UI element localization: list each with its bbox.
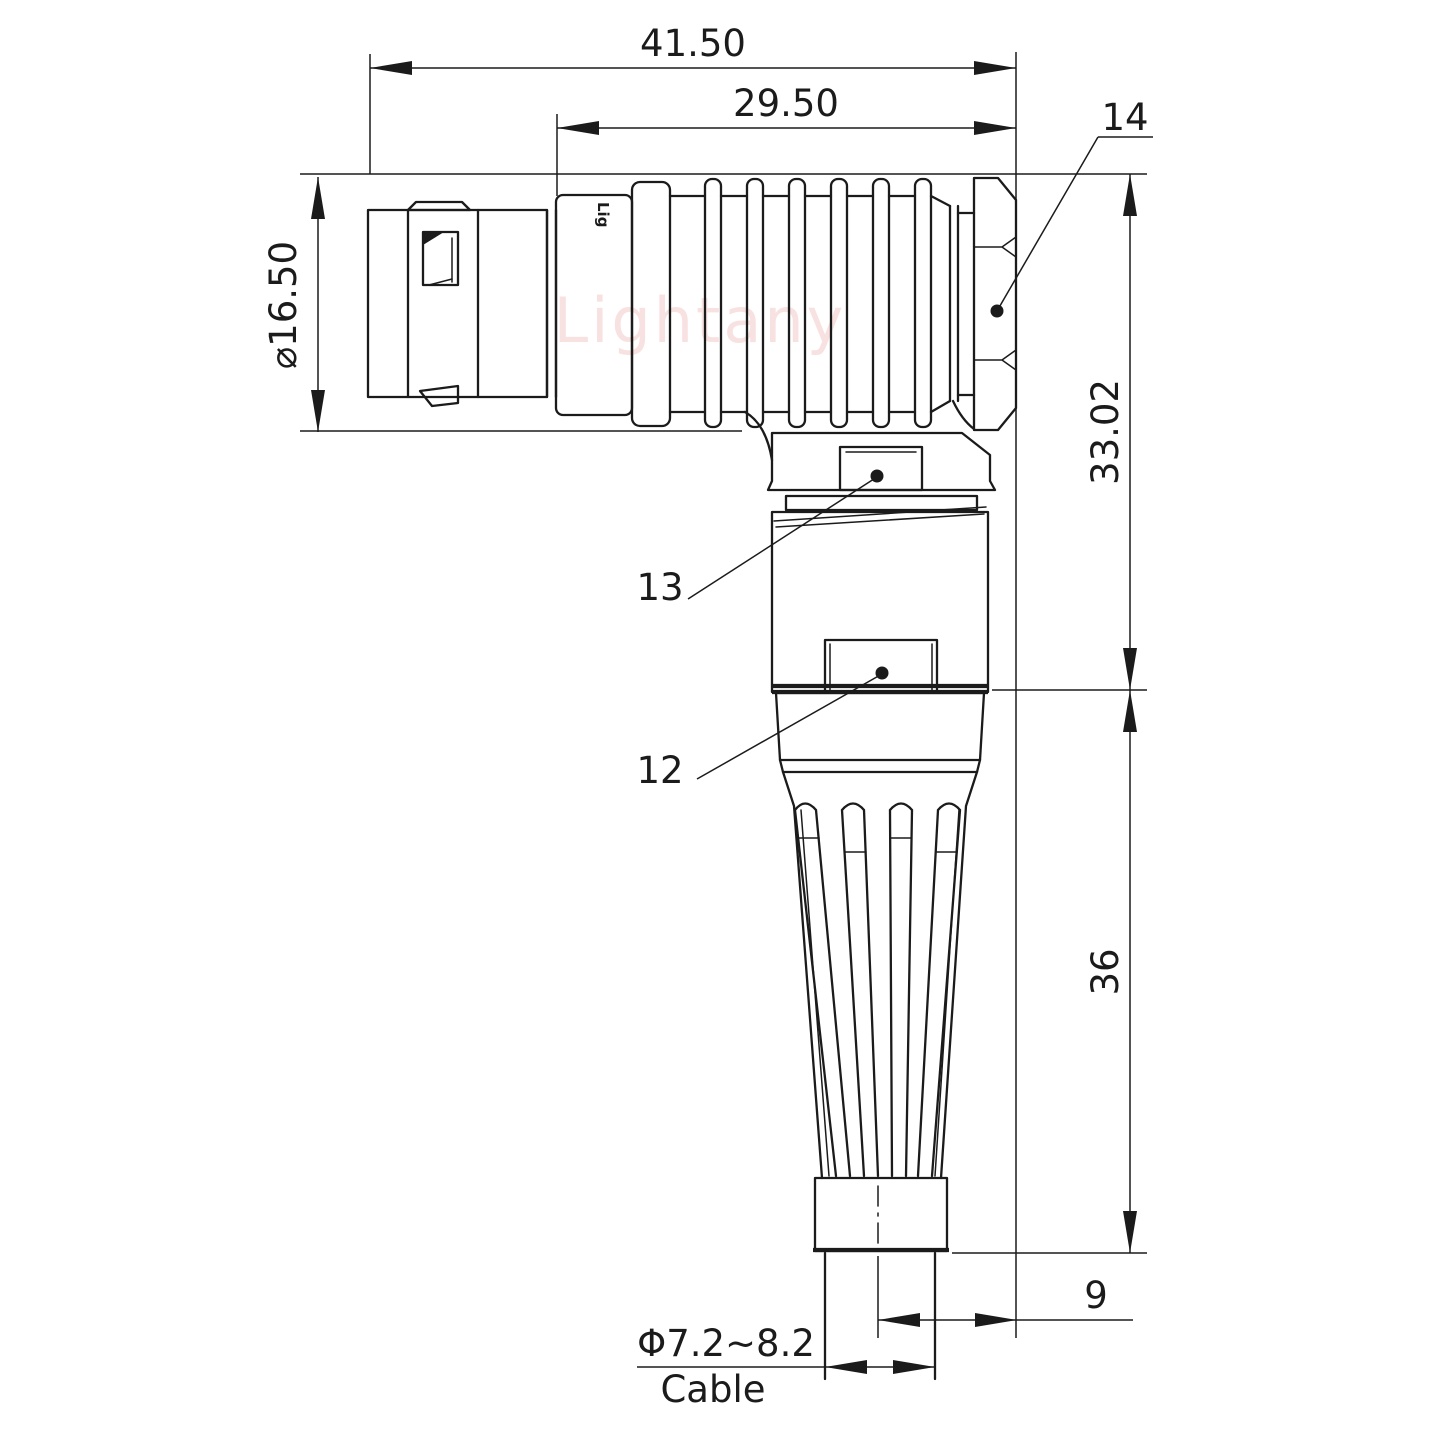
part-label-13: 13 bbox=[636, 566, 683, 609]
thread-ring bbox=[786, 496, 977, 510]
part-label-12: 12 bbox=[636, 749, 683, 792]
connector-vertical-body bbox=[768, 433, 995, 1379]
dimension-rear-length: 29.50 bbox=[557, 82, 1016, 135]
boot-slot-2 bbox=[842, 804, 878, 1177]
dim-rear-length-text: 29.50 bbox=[733, 82, 839, 125]
clamp-nut bbox=[768, 433, 995, 490]
leader-line bbox=[697, 674, 882, 779]
dimension-total-length: 41.50 bbox=[370, 22, 1016, 75]
watermark-text: Lightany bbox=[554, 284, 847, 357]
elbow-fillet-right bbox=[953, 401, 974, 429]
part-label-14: 14 bbox=[1101, 96, 1148, 139]
rib-5 bbox=[873, 179, 889, 427]
coupling-nut bbox=[974, 178, 1016, 430]
arrow-left bbox=[878, 1313, 920, 1327]
latch-window-shadow bbox=[423, 232, 444, 245]
leader-dot bbox=[991, 305, 1004, 318]
dim-cable-diameter-text: Φ7.2~8.2 bbox=[637, 1322, 815, 1365]
cable-label-text: Cable bbox=[660, 1368, 765, 1411]
leader-line bbox=[997, 137, 1098, 311]
arrow-right bbox=[975, 1313, 1017, 1327]
leader-dot bbox=[876, 667, 889, 680]
arrow-top bbox=[1123, 174, 1137, 216]
dimension-cable-offset: 9 bbox=[878, 1274, 1133, 1327]
arrow-bottom bbox=[1123, 648, 1137, 690]
dim-cable-offset-text: 9 bbox=[1084, 1274, 1108, 1317]
dimension-cable-diameter: Φ7.2~8.2 Cable bbox=[637, 1322, 935, 1411]
body-barrel bbox=[772, 512, 988, 692]
coupling-nut-outline bbox=[974, 178, 1016, 430]
alignment-key bbox=[408, 202, 470, 210]
arrow-right bbox=[974, 121, 1016, 135]
cable-collar bbox=[815, 1178, 947, 1251]
dim-upper-height-text: 33.02 bbox=[1084, 379, 1127, 485]
groove-bottom-lines bbox=[670, 401, 950, 412]
arrow-left bbox=[557, 121, 599, 135]
nut-facet-1 bbox=[974, 237, 1016, 257]
arrow-top bbox=[1123, 690, 1137, 732]
boot-slot-1 bbox=[795, 804, 850, 1177]
latch-tab-line bbox=[421, 392, 432, 406]
groove-top-lines bbox=[670, 196, 950, 206]
arrow-right bbox=[974, 61, 1016, 75]
dim-lower-height-text: 36 bbox=[1084, 948, 1127, 995]
elbow-fillet-left bbox=[745, 412, 772, 460]
brand-engraving: Lig bbox=[594, 202, 612, 227]
dimension-front-diameter: ⌀16.50 bbox=[262, 177, 325, 432]
clamp-nut-window bbox=[840, 447, 922, 490]
thread-line-2 bbox=[776, 514, 984, 527]
dim-total-length-text: 41.50 bbox=[640, 22, 746, 65]
technical-drawing-page: Lightany Lig bbox=[0, 0, 1440, 1440]
dim-front-diameter-text: ⌀16.50 bbox=[262, 241, 305, 369]
boot-slot-3 bbox=[890, 804, 912, 1177]
connector-elbow-drawing: Lightany Lig bbox=[0, 0, 1440, 1440]
boot-holder bbox=[776, 693, 984, 760]
leader-line bbox=[688, 477, 877, 599]
arrow-bottom bbox=[311, 390, 325, 432]
boot-webs bbox=[798, 838, 957, 852]
arrow-right bbox=[893, 1360, 935, 1374]
strain-relief-boot bbox=[783, 772, 977, 1178]
nut-facet-2 bbox=[974, 350, 1016, 370]
dimension-lower-height: 36 bbox=[1084, 690, 1137, 1253]
leader-dot bbox=[871, 470, 884, 483]
boot-holder-ring bbox=[780, 760, 980, 772]
arrow-left bbox=[825, 1360, 867, 1374]
arrow-left bbox=[370, 61, 412, 75]
rib-6 bbox=[915, 179, 931, 427]
dimension-upper-height: 33.02 bbox=[1084, 174, 1137, 690]
arrow-top bbox=[311, 177, 325, 219]
arrow-bottom bbox=[1123, 1211, 1137, 1253]
